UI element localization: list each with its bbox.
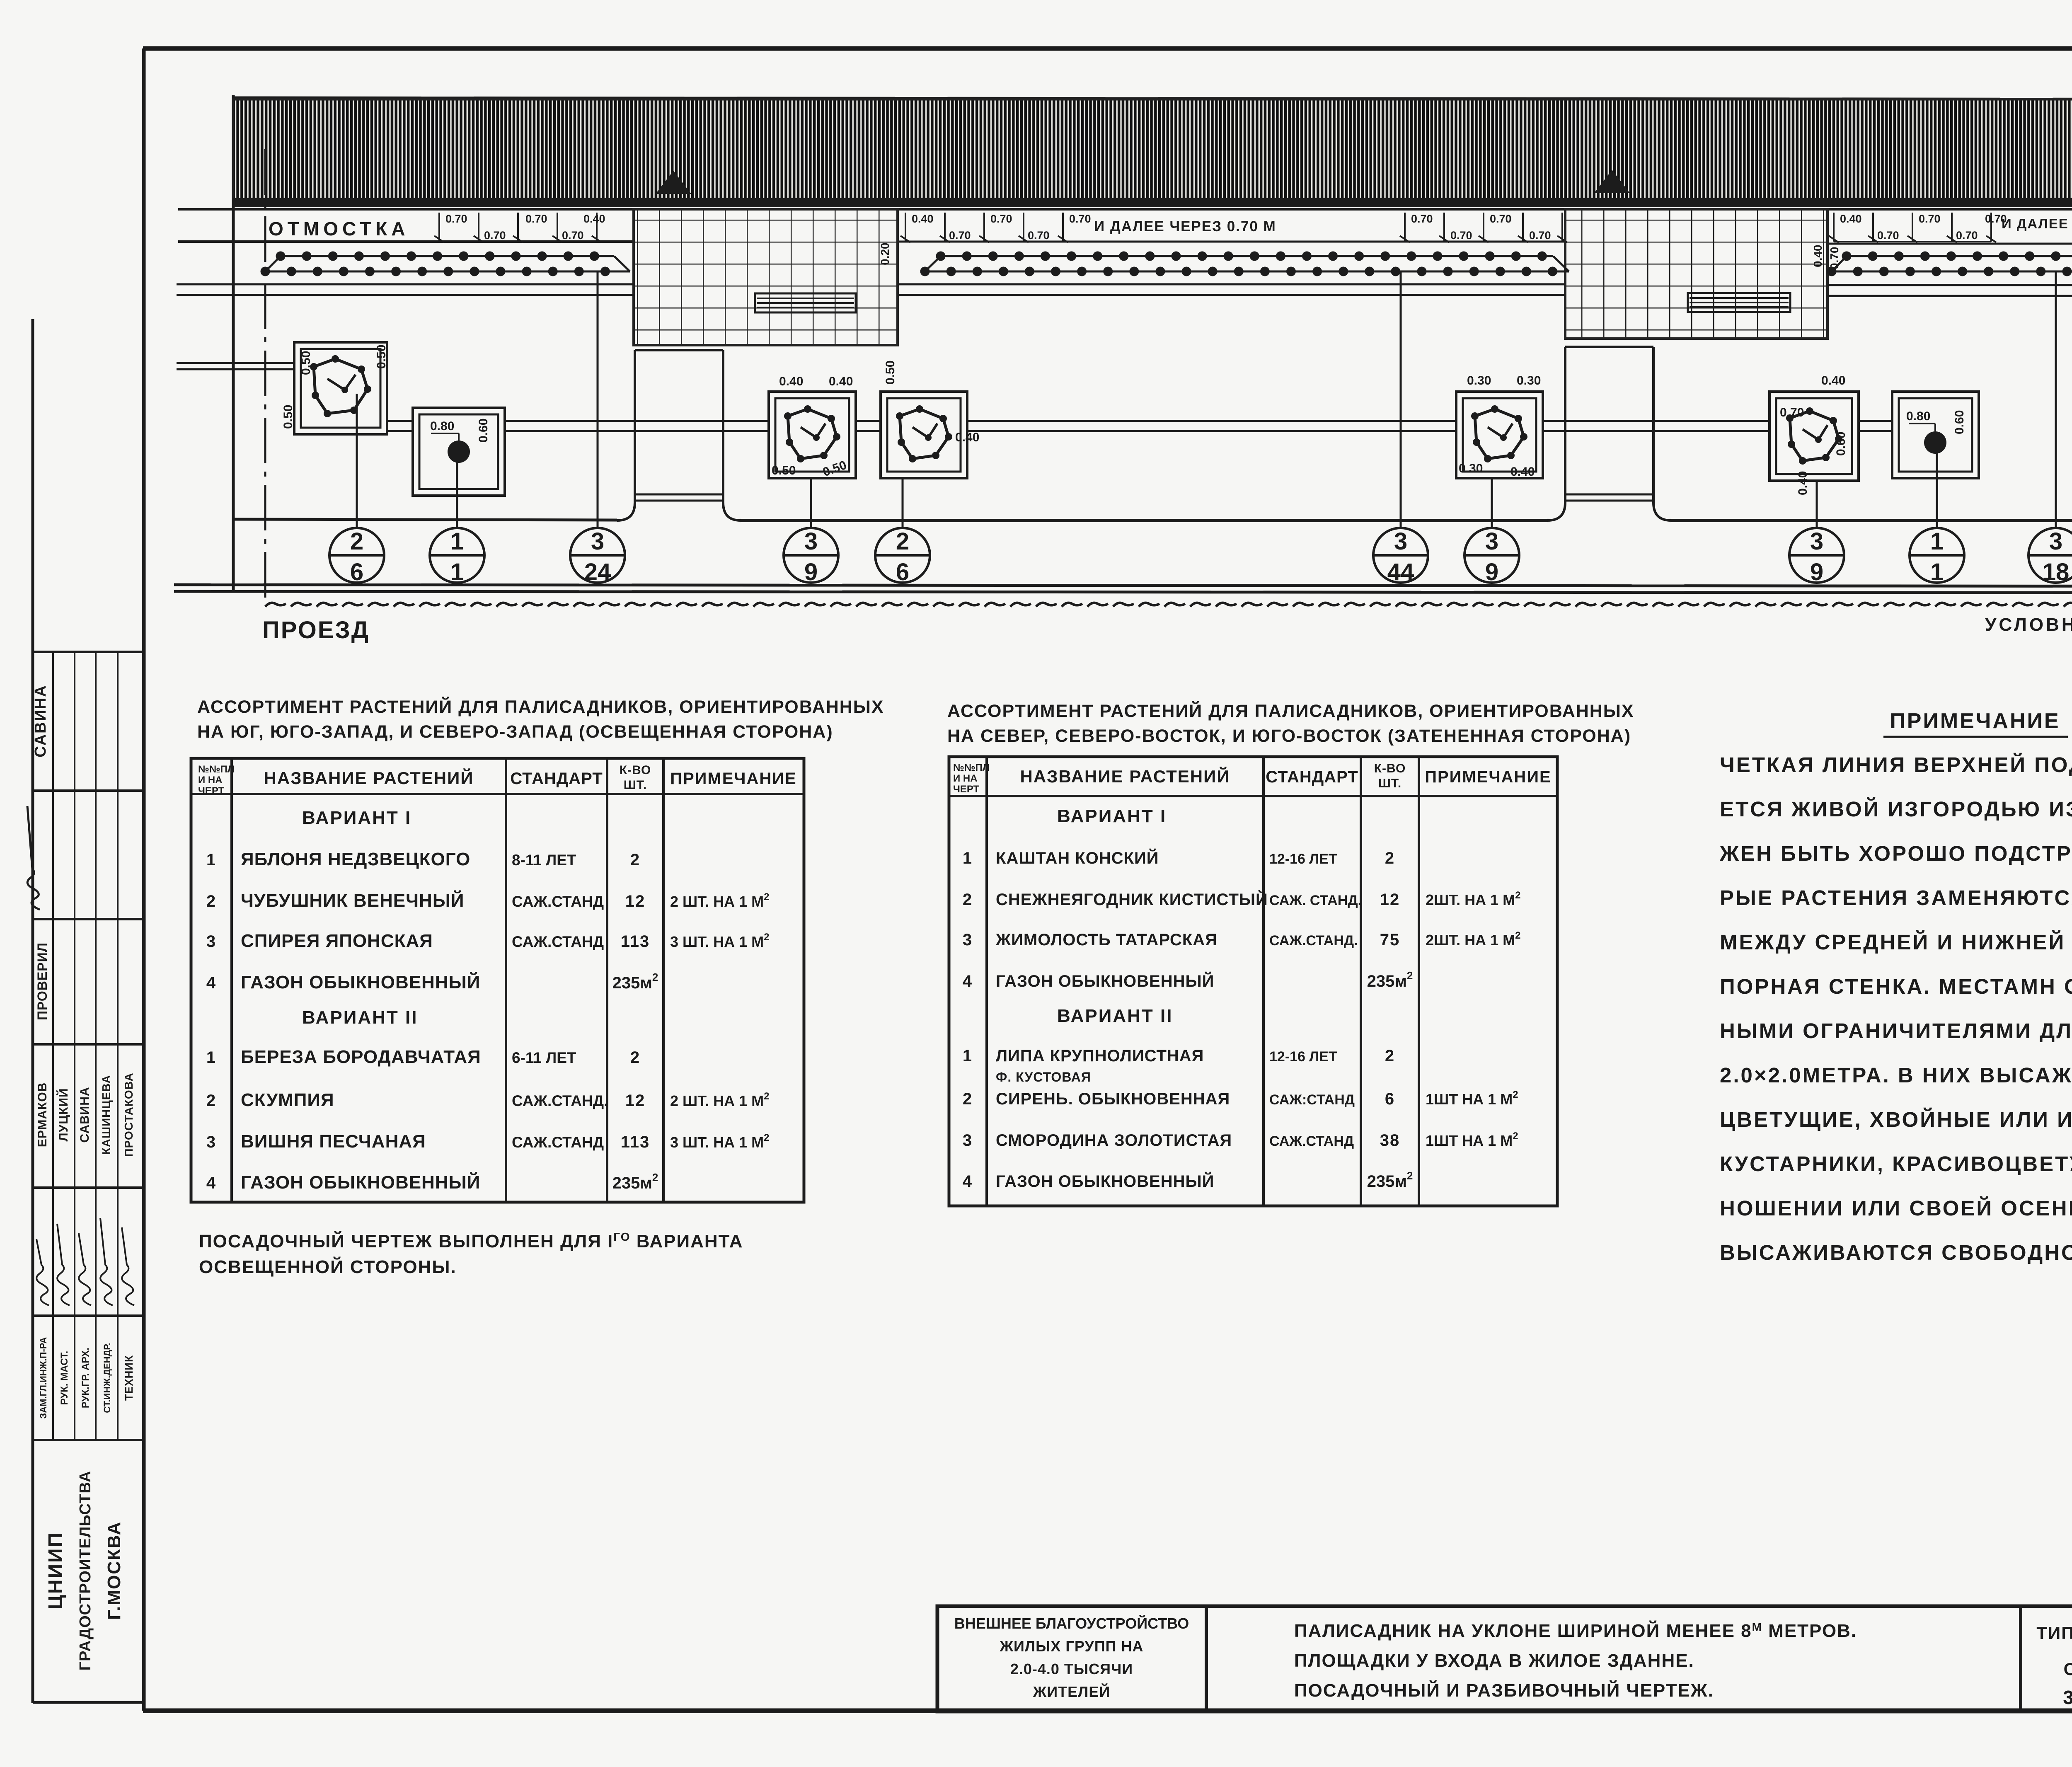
svg-text:0.70: 0.70 [562,229,584,242]
svg-text:СНЕЖНЕЯГОДНИК КИСТИСТЫЙ: СНЕЖНЕЯГОДНИК КИСТИСТЫЙ [996,890,1268,909]
svg-text:2: 2 [896,528,909,555]
svg-text:0.40: 0.40 [583,213,605,225]
svg-text:3 ШТ. НА 1 М2: 3 ШТ. НА 1 М2 [670,932,770,950]
svg-text:САЖ.СТАНД: САЖ.СТАНД [1269,1133,1354,1149]
svg-text:РУК.ГР. АРХ.: РУК.ГР. АРХ. [80,1348,91,1408]
svg-text:1: 1 [450,528,464,555]
svg-text:1: 1 [1930,528,1944,555]
svg-text:К-ВО: К-ВО [620,763,651,777]
svg-text:0.70: 0.70 [484,229,506,242]
svg-text:75: 75 [1380,931,1400,949]
svg-text:3: 3 [1394,528,1407,555]
svg-text:ЛИПА КРУПНОЛИСТНАЯ: ЛИПА КРУПНОЛИСТНАЯ [996,1047,1204,1065]
svg-text:3: 3 [206,1133,216,1151]
svg-text:САЖ.СТАНД: САЖ.СТАНД [512,893,604,910]
svg-text:3: 3 [1485,528,1498,555]
svg-text:2.0×2.0МЕТРА. В НИХ ВЫСАЖИВА: 2.0×2.0МЕТРА. В НИХ ВЫСАЖИВАЮТСЯ ДЕРЕВЬЯ… [1720,1063,2072,1087]
svg-text:2: 2 [630,1048,640,1067]
svg-text:235м2: 235м2 [1367,969,1413,990]
svg-text:0.40: 0.40 [912,213,934,225]
svg-text:0.40: 0.40 [1796,471,1810,495]
svg-text:0.70: 0.70 [1956,229,1978,242]
svg-text:ПАЛИСАДНИК НА УКЛОНЕ ШИРИНО: ПАЛИСАДНИК НА УКЛОНЕ ШИРИНОЙ МЕНЕЕ 8М МЕ… [1294,1620,1857,1641]
svg-text:1: 1 [206,1048,216,1067]
svg-text:ОСВЕЩЕННОЙ СТОРОНЫ.: ОСВЕЩЕННОЙ СТОРОНЫ. [199,1256,457,1277]
svg-text:САВИНА: САВИНА [32,685,49,758]
svg-text:КАШТАН КОНСКИЙ: КАШТАН КОНСКИЙ [996,848,1159,867]
svg-text:1ШТ НА 1 М2: 1ШТ НА 1 М2 [1426,1130,1518,1149]
svg-text:1: 1 [450,559,464,586]
svg-text:2: 2 [963,1090,973,1108]
svg-text:САЖ:СТАНД: САЖ:СТАНД [1269,1092,1355,1108]
svg-text:0.70: 0.70 [990,213,1012,225]
svg-text:3 ШТ. НА 1 М2: 3 ШТ. НА 1 М2 [670,1132,770,1151]
svg-text:8-11 ЛЕТ: 8-11 ЛЕТ [512,852,576,869]
svg-text:ШТ.: ШТ. [1378,777,1402,790]
svg-text:СИРЕНЬ. ОБЫКНОВЕННАЯ: СИРЕНЬ. ОБЫКНОВЕННАЯ [996,1090,1230,1108]
svg-text:0.80: 0.80 [430,419,454,433]
svg-text:АССОРТИМЕНТ РАСТЕНИЙ ДЛЯ ПА: АССОРТИМЕНТ РАСТЕНИЙ ДЛЯ ПАЛИСАДНИКОВ, О… [197,697,884,717]
svg-text:СТ.ИНЖ.ДЕНДР.: СТ.ИНЖ.ДЕНДР. [102,1343,112,1413]
svg-text:ПОСАДОЧНЫЙ ЧЕРТЕЖ ВЫПОЛНЕН: ПОСАДОЧНЫЙ ЧЕРТЕЖ ВЫПОЛНЕН ДЛЯ IГО ВАРИА… [199,1230,743,1251]
svg-text:ПРОЕЗД: ПРОЕЗД [262,617,370,644]
svg-text:4: 4 [963,972,973,990]
svg-text:2.0-4.0 ТЫСЯЧИ: 2.0-4.0 ТЫСЯЧИ [1010,1660,1133,1677]
svg-text:РУК. МАСТ.: РУК. МАСТ. [59,1351,70,1405]
svg-text:2 ШТ. НА 1 М2: 2 ШТ. НА 1 М2 [670,891,770,910]
svg-text:ЕРМАКОВ: ЕРМАКОВ [36,1082,49,1147]
svg-text:СМОРОДИНА ЗОЛОТИСТАЯ: СМОРОДИНА ЗОЛОТИСТАЯ [996,1131,1232,1150]
svg-text:12: 12 [625,1092,646,1110]
svg-text:ВАРИАНТ II: ВАРИАНТ II [302,1007,418,1028]
svg-text:САЖ. СТАНД.: САЖ. СТАНД. [1269,893,1362,908]
svg-text:ВЫСАЖИВАЮТСЯ СВОБОДНОЙ Г: ВЫСАЖИВАЮТСЯ СВОБОДНОЙ ГРУППОЙ. [1720,1240,2072,1264]
svg-text:ЖИМОЛОСТЬ ТАТАРСКАЯ: ЖИМОЛОСТЬ ТАТАРСКАЯ [995,931,1218,949]
svg-text:ГАЗОН ОБЫКНОВЕННЫЙ: ГАЗОН ОБЫКНОВЕННЫЙ [241,1172,480,1193]
svg-text:2: 2 [963,891,973,909]
svg-text:44: 44 [1387,559,1414,586]
svg-text:ЯБЛОНЯ НЕДЗВЕЦКОГО: ЯБЛОНЯ НЕДЗВЕЦКОГО [241,849,470,869]
svg-text:ВИШНЯ ПЕСЧАНАЯ: ВИШНЯ ПЕСЧАНАЯ [241,1131,426,1152]
svg-text:0.40: 0.40 [955,431,979,444]
svg-text:САЖ.СТАНД.: САЖ.СТАНД. [512,1092,608,1109]
svg-text:0.60: 0.60 [477,419,490,443]
svg-text:2: 2 [1385,1047,1395,1065]
svg-text:НОШЕНИИ ИЛИ СВОЕЙ ОСЕННЕЙ: НОШЕНИИ ИЛИ СВОЕЙ ОСЕННЕЙ ОКРАСКОЙ. КУСТ… [1720,1196,2072,1220]
svg-text:0.50: 0.50 [375,345,388,369]
svg-text:1ШТ НА 1 М2: 1ШТ НА 1 М2 [1426,1089,1518,1108]
svg-text:МЕЖДУ СРЕДНЕЙ И НИЖНЕЙ ТЕР: МЕЖДУ СРЕДНЕЙ И НИЖНЕЙ ТЕРРАСОЙ ИДЕТ ВТО… [1720,930,2072,954]
svg-text:№№ПЛ: №№ПЛ [198,764,235,775]
svg-text:113: 113 [621,1133,650,1151]
svg-text:113: 113 [621,932,650,951]
svg-text:ПРИМЕЧАНИЕ: ПРИМЕЧАНИЕ [1890,709,2060,733]
svg-text:0.70: 0.70 [1919,213,1941,225]
svg-text:3: 3 [206,932,216,951]
svg-text:НАЗВАНИЕ РАСТЕНИЙ: НАЗВАНИЕ РАСТЕНИЙ [264,768,474,788]
svg-text:2: 2 [1385,849,1395,867]
svg-text:4: 4 [963,1172,973,1191]
svg-text:0.70: 0.70 [1877,229,1899,242]
svg-text:ЖИЛЫХ ГРУПП НА: ЖИЛЫХ ГРУПП НА [999,1638,1143,1655]
svg-text:КУСТАРНИКИ, КРАСИВОЦВЕТУЩИЕ,: КУСТАРНИКИ, КРАСИВОЦВЕТУЩИЕ, ДЕКОРАТИВНЫ… [1720,1152,2072,1176]
svg-text:6: 6 [896,559,909,586]
svg-text:4: 4 [206,974,216,992]
svg-text:ПОРНАЯ СТЕНКА. МЕСТАМН ОНА: ПОРНАЯ СТЕНКА. МЕСТАМН ОНА ПРЕРЫВАЕТСЯ К… [1720,975,2072,998]
svg-text:ПРИМЕЧАНИЕ: ПРИМЕЧАНИЕ [670,770,797,788]
svg-text:38: 38 [1380,1131,1400,1150]
svg-text:№№ПЛ: №№ПЛ [953,762,990,773]
svg-text:0.50: 0.50 [884,361,897,385]
svg-text:ЗАМ.ГЛ.ИНЖ.П-РА: ЗАМ.ГЛ.ИНЖ.П-РА [38,1337,48,1418]
svg-text:ВАРИАНТ I: ВАРИАНТ I [302,808,411,828]
svg-text:0.70: 0.70 [1828,247,1841,270]
svg-text:0.70: 0.70 [1411,213,1433,225]
svg-text:1: 1 [963,849,973,867]
svg-text:3: 3 [1810,528,1823,555]
svg-text:К-ВО: К-ВО [1374,762,1406,775]
svg-text:3: 3 [2049,528,2062,555]
svg-text:0.30: 0.30 [1459,462,1483,475]
svg-text:СТАНДАРТ: СТАНДАРТ [510,770,603,788]
svg-text:ГАЗОН ОБЫКНОВЕННЫЙ: ГАЗОН ОБЫКНОВЕННЫЙ [241,971,480,992]
svg-text:ЧЕТКАЯ ЛИНИЯ ВЕРХНЕЙ ПОДПОР: ЧЕТКАЯ ЛИНИЯ ВЕРХНЕЙ ПОДПОРНОЙ СТЕНКИ ПО… [1720,753,2072,777]
svg-text:ГРАДОСТРОИТЕЛЬСТВА: ГРАДОСТРОИТЕЛЬСТВА [77,1471,94,1671]
svg-text:И ДАЛЕЕ ЧЕРЕЗ 0.70 М: И ДАЛЕЕ ЧЕРЕЗ 0.70 М [2002,216,2072,231]
svg-text:0.70: 0.70 [1028,229,1050,242]
svg-text:0.40: 0.40 [1840,213,1862,225]
svg-text:ГАЗОН ОБЫКНОВЕННЫЙ: ГАЗОН ОБЫКНОВЕННЫЙ [996,1172,1214,1191]
svg-text:УСЛОВНАЯ ГРАНИЦА: УСЛОВНАЯ ГРАНИЦА [1985,615,2072,635]
svg-text:ТИПОВОЙ ПРОЕКТ: ТИПОВОЙ ПРОЕКТ [2036,1623,2072,1643]
svg-text:1: 1 [1930,559,1944,586]
svg-text:6: 6 [1385,1090,1395,1108]
svg-text:12: 12 [625,892,646,910]
svg-text:0.60: 0.60 [1834,432,1848,456]
svg-text:0.70: 0.70 [525,213,547,225]
svg-text:2ШТ. НА 1 М2: 2ШТ. НА 1 М2 [1426,890,1521,908]
svg-text:9: 9 [804,559,818,586]
svg-text:СЕРИЯ: СЕРИЯ [2064,1659,2072,1679]
svg-text:0.40: 0.40 [779,375,803,388]
svg-text:0.70: 0.70 [445,213,467,225]
svg-text:0.40: 0.40 [1510,465,1535,479]
svg-text:320-35: 320-35 [2063,1687,2072,1708]
svg-text:235м2: 235м2 [612,1171,658,1192]
svg-text:СКУМПИЯ: СКУМПИЯ [241,1090,334,1110]
svg-text:3: 3 [591,528,604,555]
svg-text:ПЛОЩАДКИ У ВХОДА В ЖИЛОЕ: ПЛОЩАДКИ У ВХОДА В ЖИЛОЕ ЗДАННЕ. [1294,1651,1694,1671]
svg-text:АССОРТИМЕНТ РАСТЕНИЙ ДЛЯ ПА: АССОРТИМЕНТ РАСТЕНИЙ ДЛЯ ПАЛИСАДНИКОВ, О… [947,701,1634,721]
svg-text:ЦНИИП: ЦНИИП [45,1532,67,1610]
svg-text:И ДАЛЕЕ ЧЕРЕЗ 0.70 М: И ДАЛЕЕ ЧЕРЕЗ 0.70 М [1094,218,1276,235]
svg-text:0.70: 0.70 [1529,229,1551,242]
svg-text:0.70: 0.70 [1490,213,1512,225]
svg-text:2: 2 [350,528,363,555]
svg-text:0.40: 0.40 [829,375,853,388]
svg-text:НЫМИ ОГРАНИЧИТЕЛЯМИ ДЛЯ НАС: НЫМИ ОГРАНИЧИТЕЛЯМИ ДЛЯ НАСАЖДЕНИЙ РАЗМЕ… [1720,1019,2072,1043]
svg-text:ТЕХНИК: ТЕХНИК [123,1355,135,1401]
svg-text:3: 3 [963,931,973,949]
svg-text:18: 18 [2043,559,2070,586]
svg-text:САЖ.СТАНД: САЖ.СТАНД [512,933,604,950]
svg-text:САЖ.СТАНД.: САЖ.СТАНД. [1269,933,1358,949]
svg-text:0.70: 0.70 [1069,213,1091,225]
svg-text:ЧЕРТ: ЧЕРТ [198,785,225,796]
svg-text:2: 2 [206,892,216,910]
svg-text:0.50: 0.50 [772,464,796,477]
svg-text:ЛУЦКИЙ: ЛУЦКИЙ [56,1088,70,1141]
svg-text:Г.МОСКВА: Г.МОСКВА [104,1521,124,1620]
svg-text:ВАРИАНТ I: ВАРИАНТ I [1057,806,1167,826]
svg-text:235м2: 235м2 [612,971,658,992]
svg-text:3: 3 [963,1131,973,1150]
svg-text:САЖ.СТАНД: САЖ.СТАНД [512,1134,604,1151]
svg-text:0.80: 0.80 [1906,409,1930,423]
svg-text:4: 4 [206,1174,216,1192]
svg-text:3: 3 [804,528,818,555]
svg-text:6: 6 [350,559,363,586]
svg-text:2: 2 [206,1092,216,1110]
svg-text:0.70: 0.70 [1450,229,1472,242]
svg-text:ЧУБУШНИК ВЕНЕЧНЫЙ: ЧУБУШНИК ВЕНЕЧНЫЙ [241,890,465,911]
svg-text:0.50: 0.50 [281,405,295,429]
svg-text:9: 9 [1485,559,1498,586]
svg-text:ПРОСТАКОВА: ПРОСТАКОВА [122,1072,135,1157]
svg-text:ЖЕН БЫТЬ ХОРОШО ПОДСТРИЖЕН.: ЖЕН БЫТЬ ХОРОШО ПОДСТРИЖЕН. В СЛУЧАЕ ОТП… [1719,842,2072,865]
svg-text:235м2: 235м2 [1367,1169,1413,1191]
svg-text:6-11 ЛЕТ: 6-11 ЛЕТ [512,1049,576,1066]
svg-text:12-16 ЛЕТ: 12-16 ЛЕТ [1269,1049,1337,1065]
svg-text:ЖИТЕЛЕЙ: ЖИТЕЛЕЙ [1033,1683,1111,1700]
svg-text:2 ШТ. НА 1 М2: 2 ШТ. НА 1 М2 [670,1091,770,1109]
svg-text:1: 1 [206,851,216,869]
svg-text:РЫЕ РАСТЕНИЯ ЗАМЕНЯЮТСЯ НОВ: РЫЕ РАСТЕНИЯ ЗАМЕНЯЮТСЯ НОВЫМИ. [1720,886,2072,910]
svg-text:ЕТСЯ ЖИВОЙ ИЗГОРОДЬЮ ИЗ КУ: ЕТСЯ ЖИВОЙ ИЗГОРОДЬЮ ИЗ КУСТАРНИКА. КУСТ… [1720,797,2072,821]
svg-text:0.70: 0.70 [949,229,971,242]
svg-text:НА СЕВЕР, СЕВЕРО-ВОСТОК, И: НА СЕВЕР, СЕВЕРО-ВОСТОК, И ЮГО-ВОСТОК (З… [947,726,1631,746]
svg-text:ЦВЕТУЩИЕ, ХВОЙНЫЕ ИЛИ ИМЕЮЩИ: ЦВЕТУЩИЕ, ХВОЙНЫЕ ИЛИ ИМЕЮЩИЕ АЖУРНУЮ КР… [1720,1107,2072,1131]
svg-text:ВНЕШНЕЕ БЛАГОУСТРОЙСТВО: ВНЕШНЕЕ БЛАГОУСТРОЙСТВО [954,1615,1189,1632]
svg-text:СТАНДАРТ: СТАНДАРТ [1266,768,1358,786]
svg-text:НАЗВАНИЕ РАСТЕНИЙ: НАЗВАНИЕ РАСТЕНИЙ [1020,766,1230,786]
svg-text:НА ЮГ, ЮГО-ЗАПАД, И СЕВЕРО-З: НА ЮГ, ЮГО-ЗАПАД, И СЕВЕРО-ЗАПАД (ОСВЕЩЕ… [197,722,833,742]
svg-text:12-16 ЛЕТ: 12-16 ЛЕТ [1269,851,1337,867]
svg-text:12: 12 [1380,891,1400,909]
svg-text:9: 9 [1810,559,1823,586]
svg-text:1: 1 [963,1047,973,1065]
svg-text:Ф. КУСТОВАЯ: Ф. КУСТОВАЯ [996,1070,1091,1084]
svg-text:0.50: 0.50 [299,351,313,375]
svg-text:ШТ.: ШТ. [624,778,647,792]
svg-text:ПОСАДОЧНЫЙ И РАЗБИВОЧНЫЙ Ч: ПОСАДОЧНЫЙ И РАЗБИВОЧНЫЙ ЧЕРТЕЖ. [1294,1680,1714,1701]
svg-text:И НА: И НА [953,773,978,784]
svg-text:24: 24 [584,559,611,586]
svg-text:КАШИНЦЕВА: КАШИНЦЕВА [100,1075,113,1155]
svg-text:САВИНА: САВИНА [78,1087,92,1142]
svg-text:БЕРЕЗА БОРОДАВЧАТАЯ: БЕРЕЗА БОРОДАВЧАТАЯ [241,1047,481,1067]
svg-text:ПРОВЕРИЛ: ПРОВЕРИЛ [35,942,50,1020]
svg-text:0.30: 0.30 [1467,374,1491,387]
svg-text:ОТМОСТКА: ОТМОСТКА [269,218,409,240]
svg-text:2: 2 [630,851,640,869]
svg-text:И НА: И НА [198,775,223,786]
svg-text:СПИРЕЯ ЯПОНСКАЯ: СПИРЕЯ ЯПОНСКАЯ [241,931,433,951]
svg-text:0.40: 0.40 [1821,374,1845,387]
svg-text:ПРИМЕЧАНИЕ: ПРИМЕЧАНИЕ [1425,768,1552,786]
svg-text:0.30: 0.30 [1517,374,1541,387]
svg-text:0.60: 0.60 [1953,410,1966,434]
svg-text:ГАЗОН ОБЫКНОВЕННЫЙ: ГАЗОН ОБЫКНОВЕННЫЙ [996,971,1214,990]
svg-text:2ШТ. НА 1 М2: 2ШТ. НА 1 М2 [1426,930,1521,949]
svg-text:0.70: 0.70 [1780,406,1804,419]
svg-text:ЧЕРТ: ЧЕРТ [953,784,980,795]
svg-text:ВАРИАНТ II: ВАРИАНТ II [1057,1006,1173,1026]
